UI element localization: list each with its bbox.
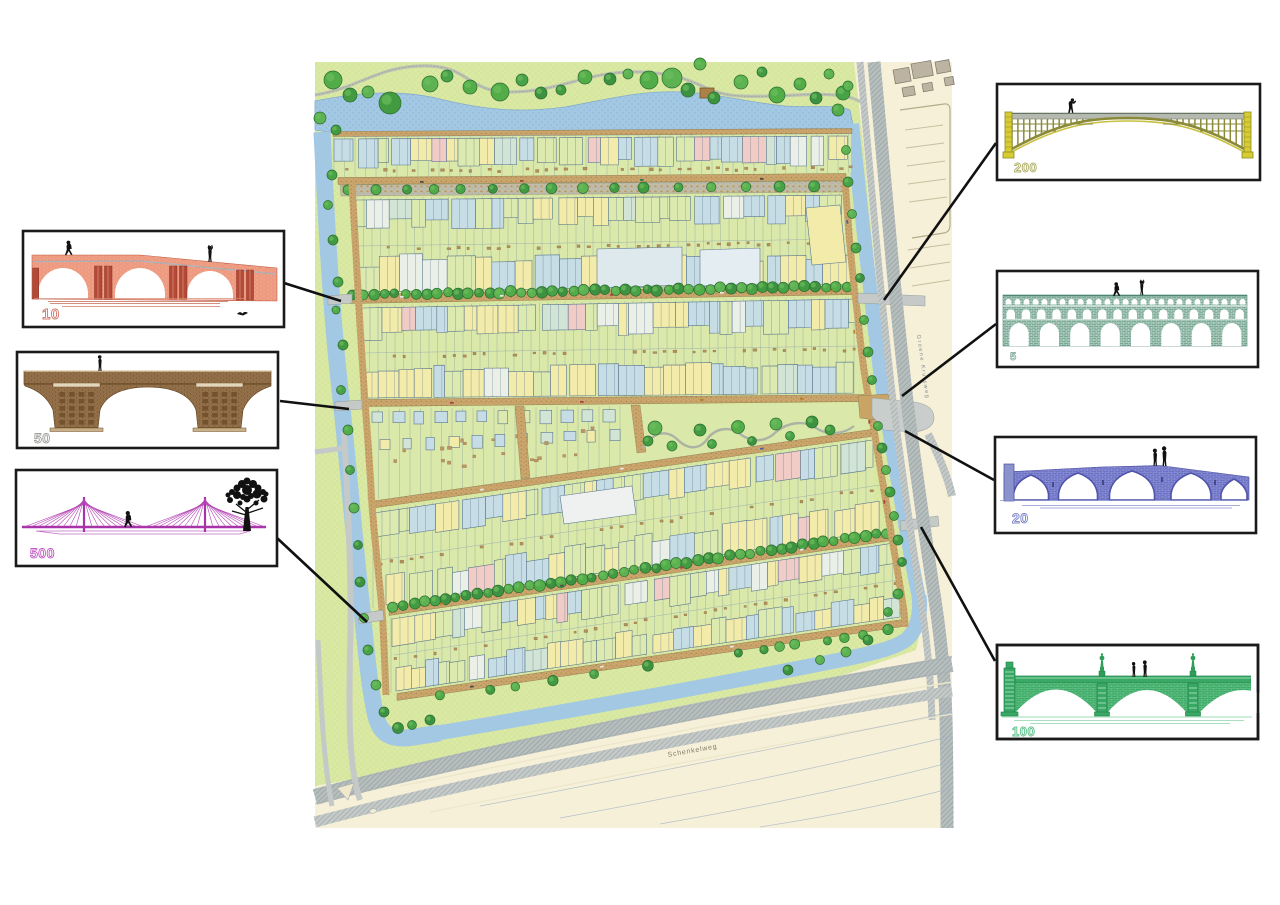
svg-text:20: 20: [1012, 510, 1029, 526]
svg-text:50: 50: [34, 430, 51, 446]
svg-text:500: 500: [30, 545, 55, 561]
svg-text:100: 100: [1012, 724, 1035, 739]
svg-text:10: 10: [42, 306, 60, 323]
svg-text:200: 200: [1014, 160, 1037, 175]
svg-text:5: 5: [1010, 351, 1017, 363]
